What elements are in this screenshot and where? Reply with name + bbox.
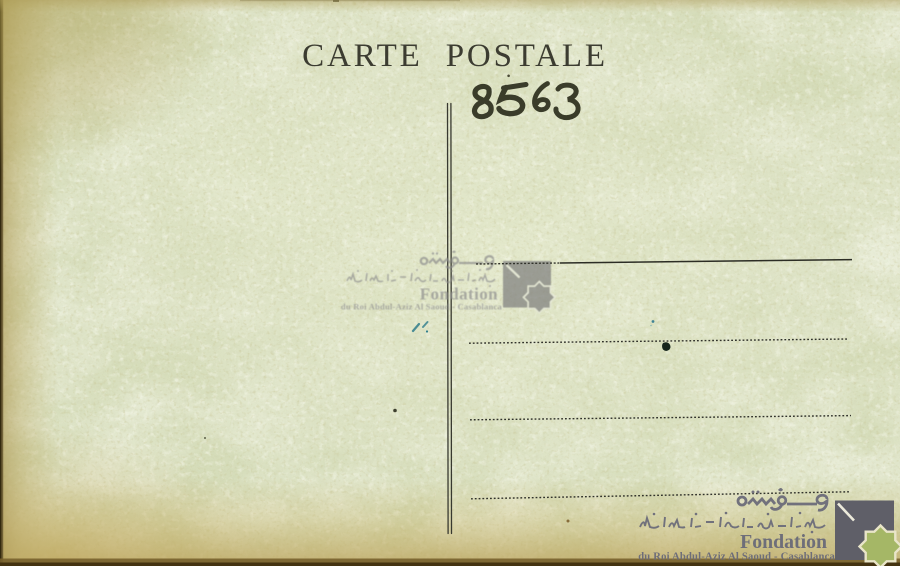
svg-text:CARTE POSTALE: CARTE POSTALE (302, 38, 608, 74)
svg-text:Fondation: Fondation (740, 531, 827, 553)
svg-text:du Roi Abdul-Aziz Al Saoud - C: du Roi Abdul-Aziz Al Saoud - Casablanca (638, 552, 835, 563)
svg-text:du Roi Abdul-Aziz Al Saoud - C: du Roi Abdul-Aziz Al Saoud - Casablanca (341, 302, 503, 312)
